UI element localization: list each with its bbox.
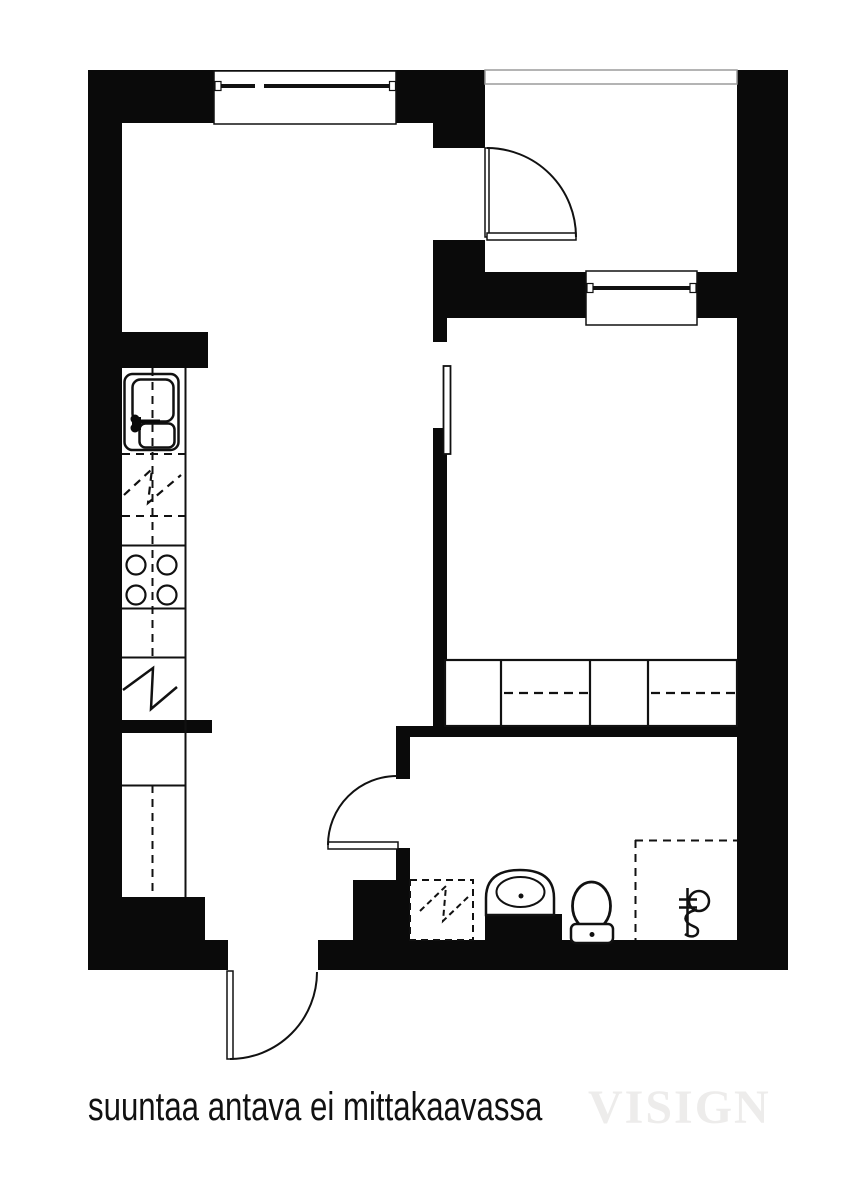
left-wall [88, 70, 122, 940]
bathroom-door [328, 776, 398, 849]
bedroom-wardrobe [445, 660, 737, 726]
balcony-door [485, 148, 576, 240]
toilet [571, 882, 613, 943]
bathroom-fixtures [410, 840, 737, 943]
hallway-left-wall-step [88, 897, 205, 941]
entrance-door [227, 971, 317, 1059]
bathroom-left-wall-lower [396, 848, 410, 880]
bathroom-left-wall-upper [396, 737, 410, 779]
balcony-partition-wall-upper [433, 70, 485, 148]
fridge-icon [123, 668, 177, 709]
shower-area [635, 840, 737, 940]
bedroom-window [586, 271, 697, 325]
bedroom-sliding-door [444, 366, 451, 454]
kitchen-wall-stub-top [88, 332, 208, 368]
kitchen-fixtures [122, 368, 186, 897]
balcony-door-swing-arc [487, 148, 576, 237]
balcony-railing [485, 70, 737, 84]
floor-drain-icon [679, 888, 709, 936]
disclaimer-text: suuntaa antava ei mittakaavassa [88, 1085, 542, 1130]
visign-watermark: VISIGN [588, 1080, 771, 1135]
floor-plan: suuntaa antava ei mittakaavassa VISIGN [0, 0, 860, 1200]
bathroom-door-opening [396, 779, 410, 848]
balcony-door-opening [433, 148, 485, 240]
bottom-wall [88, 940, 788, 970]
bedroom-left-wall-stub [433, 318, 447, 342]
entrance-door-opening [228, 940, 318, 971]
washing-machine-icon [420, 886, 468, 921]
bedroom-bathroom-wall [396, 726, 788, 737]
kitchen-wall-stub-mid [88, 720, 212, 733]
washbasin [485, 870, 562, 941]
entrance-door-swing-arc [230, 972, 317, 1059]
living-room-window [214, 71, 396, 124]
bathroom-left-wall-block [353, 880, 410, 941]
right-wall [737, 70, 788, 970]
bathroom-door-swing-arc [328, 776, 397, 845]
balcony-partition-wall-lower [433, 240, 485, 273]
